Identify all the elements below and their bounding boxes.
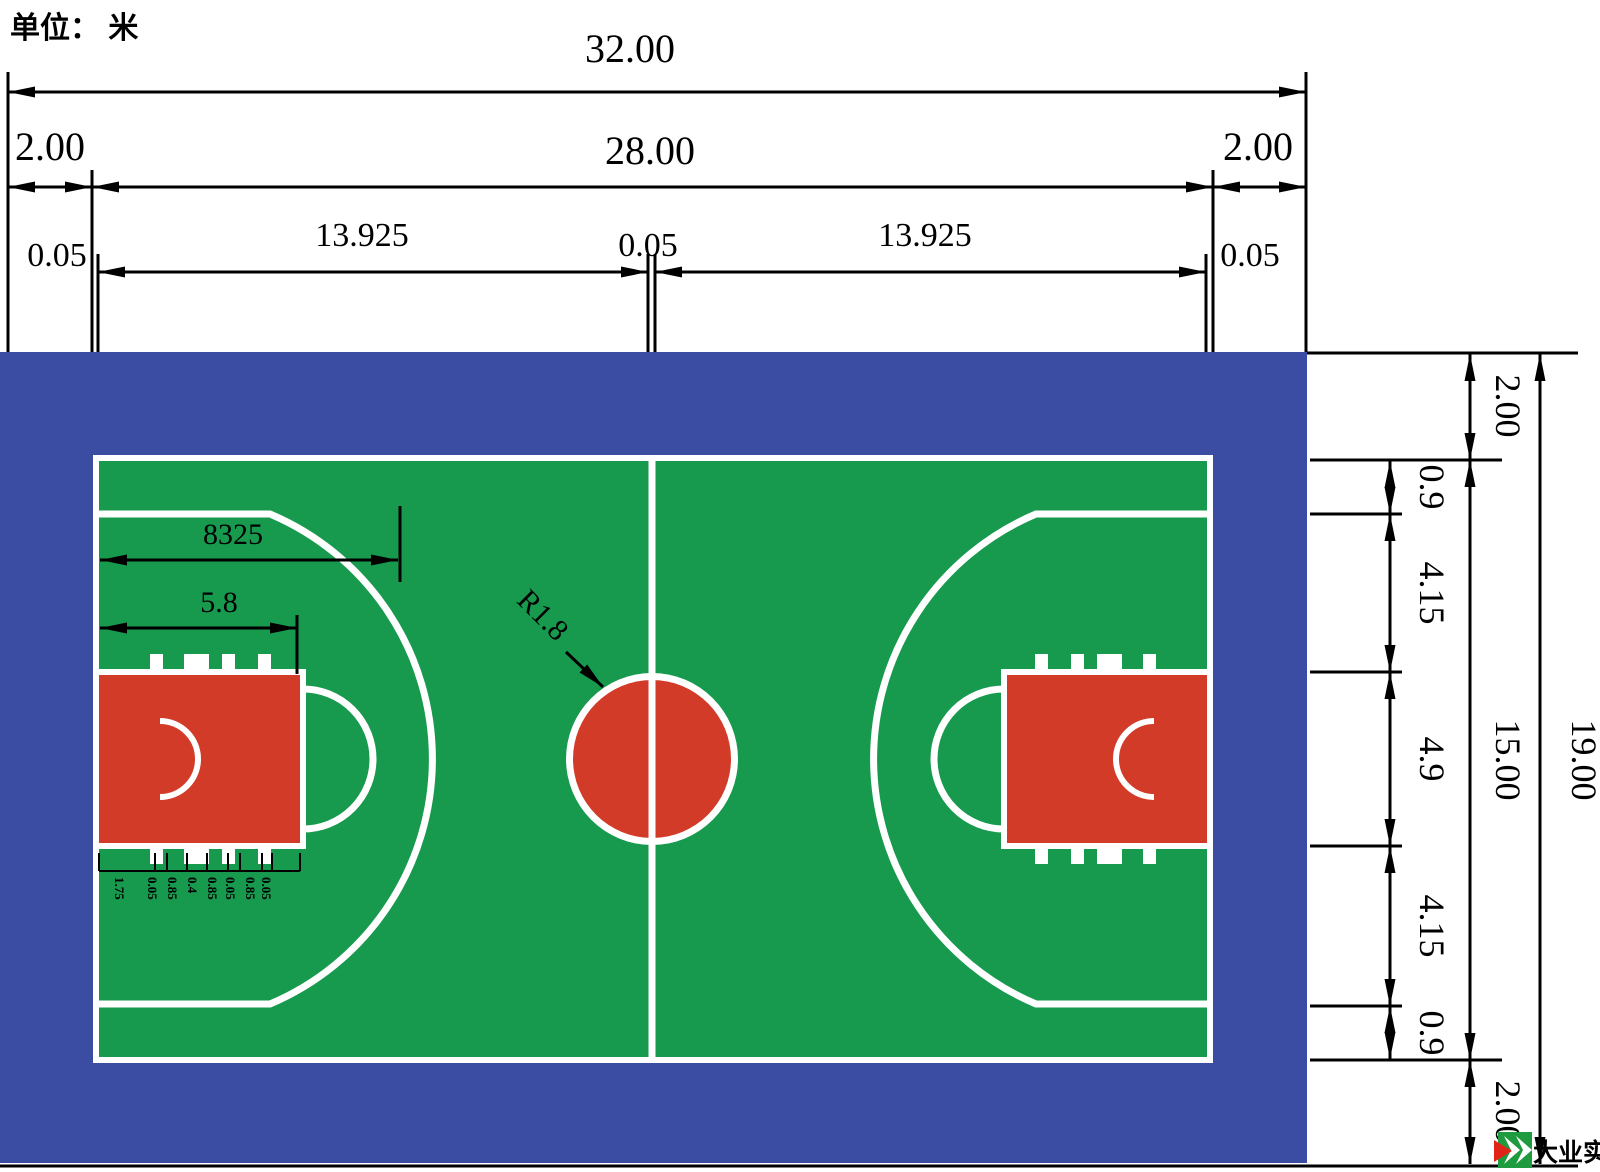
lane-chain-label: 0.05: [145, 877, 160, 900]
label-key-width: 4.9: [1412, 737, 1452, 782]
lane-chain-label: 0.05: [223, 877, 238, 900]
key-right-paint: [1007, 675, 1207, 843]
label-0-9-top: 0.9: [1412, 465, 1452, 510]
label-total-height: 19.00: [1564, 720, 1600, 801]
label-0-9-bottom: 0.9: [1412, 1011, 1452, 1056]
label-sideline-width-left: 0.05: [27, 237, 87, 274]
label-buffer-top: 2.00: [1488, 375, 1528, 438]
lane-chain-label: 0.4: [185, 877, 200, 894]
lane-hash-mark: [1143, 654, 1156, 669]
lane-hash-mark: [1097, 654, 1122, 669]
lane-hash-mark: [1035, 654, 1048, 669]
label-court-width: 15.00: [1488, 720, 1528, 801]
lane-hash-mark: [150, 654, 163, 669]
label-three-point-length: 8325: [203, 518, 263, 551]
lane-hash-mark: [1071, 849, 1084, 864]
lane-hash-mark: [1071, 654, 1084, 669]
lane-hash-mark: [258, 849, 271, 864]
label-total-width: 32.00: [585, 26, 675, 71]
company-logo: 大业实业: [1494, 1132, 1600, 1168]
label-sideline-width-right: 0.05: [1220, 237, 1280, 274]
label-buffer-right: 2.00: [1223, 124, 1293, 169]
logo-text: 大业实业: [1533, 1138, 1600, 1167]
unit-label: 单位： 米: [10, 11, 138, 45]
lane-hash-mark: [184, 654, 209, 669]
center-line: [649, 461, 656, 1057]
label-4-15-bottom: 4.15: [1412, 895, 1452, 958]
label-free-throw-distance: 5.8: [200, 586, 238, 619]
lane-chain-label: 0.85: [205, 877, 220, 900]
label-center-line-width: 0.05: [618, 227, 678, 264]
lane-chain-label: 0.85: [165, 877, 180, 900]
label-half-court-left: 13.925: [315, 217, 409, 254]
lane-chain-label: 0.85: [243, 877, 258, 900]
lane-hash-mark: [258, 654, 271, 669]
lane-hash-mark: [222, 654, 235, 669]
lane-chain-label: 1.75: [112, 877, 127, 900]
lane-hash-mark: [1143, 849, 1156, 864]
court-diagram: 单位： 米 32.00 2.00 28.00 2.00 0.05 13.925 …: [0, 0, 1600, 1172]
label-half-court-right: 13.925: [878, 217, 972, 254]
label-4-15-top: 4.15: [1412, 562, 1452, 625]
label-buffer-left: 2.00: [15, 124, 85, 169]
lane-chain-label: 0.05: [259, 877, 274, 900]
lane-hash-mark: [1097, 849, 1122, 864]
label-court-length: 28.00: [605, 128, 695, 173]
lane-hash-mark: [150, 849, 163, 864]
lane-hash-mark: [1035, 849, 1048, 864]
basketball-court-plan: 单位： 米 32.00 2.00 28.00 2.00 0.05 13.925 …: [0, 0, 1600, 1172]
